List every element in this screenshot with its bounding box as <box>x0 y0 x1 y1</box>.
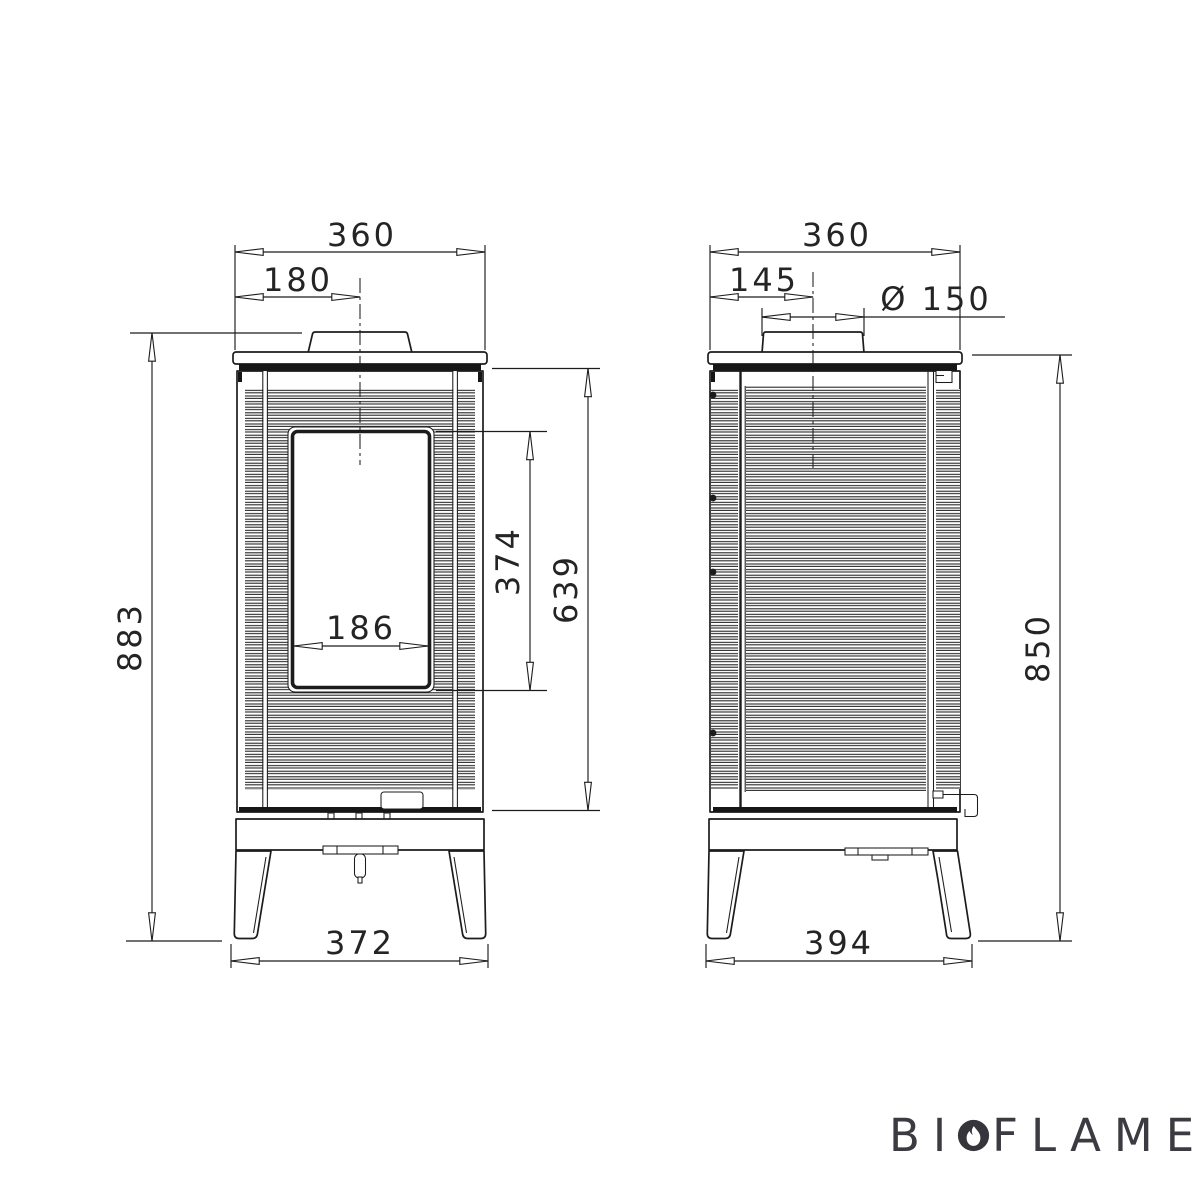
svg-text:145: 145 <box>729 261 799 299</box>
side-base-and-legs <box>707 819 970 939</box>
technical-drawing: 360 180 883 374 639 186 <box>0 0 1200 1200</box>
dim-front-flue-offset: 180 <box>235 261 360 299</box>
svg-text:360: 360 <box>327 216 397 254</box>
side-top-plate-shadow <box>713 364 957 371</box>
logo-text-flame: FLAME <box>992 1113 1200 1158</box>
dim-front-base-width: 372 <box>231 924 488 968</box>
side-top-plate <box>708 352 962 364</box>
side-panel-ribs <box>746 386 926 792</box>
side-front-corner-ribs <box>711 389 738 789</box>
svg-text:360: 360 <box>802 216 872 254</box>
side-rear-corner-ribs <box>936 389 960 789</box>
svg-text:883: 883 <box>111 602 149 672</box>
dim-side-flue-offset: 145 <box>710 261 813 299</box>
svg-text:374: 374 <box>489 526 527 596</box>
svg-text:180: 180 <box>263 261 333 299</box>
svg-text:Ø 150: Ø 150 <box>880 280 991 318</box>
svg-text:186: 186 <box>326 609 396 647</box>
svg-text:639: 639 <box>547 554 585 624</box>
dim-side-base-width: 394 <box>706 924 972 968</box>
svg-text:850: 850 <box>1019 613 1057 683</box>
svg-text:394: 394 <box>804 924 874 962</box>
side-view <box>707 272 977 939</box>
dim-side-overall-height: 850 <box>972 355 1072 941</box>
stove-dimension-drawing-page: 360 180 883 374 639 186 <box>0 0 1200 1200</box>
bioflame-logo: BI FLAME ® <box>889 1113 1200 1158</box>
flame-icon <box>957 1114 990 1159</box>
front-door-glass <box>288 427 434 692</box>
logo-text-bi: BI <box>889 1113 959 1158</box>
front-ashlip <box>381 792 423 809</box>
svg-text:372: 372 <box>325 924 395 962</box>
front-base-and-legs <box>234 819 485 939</box>
